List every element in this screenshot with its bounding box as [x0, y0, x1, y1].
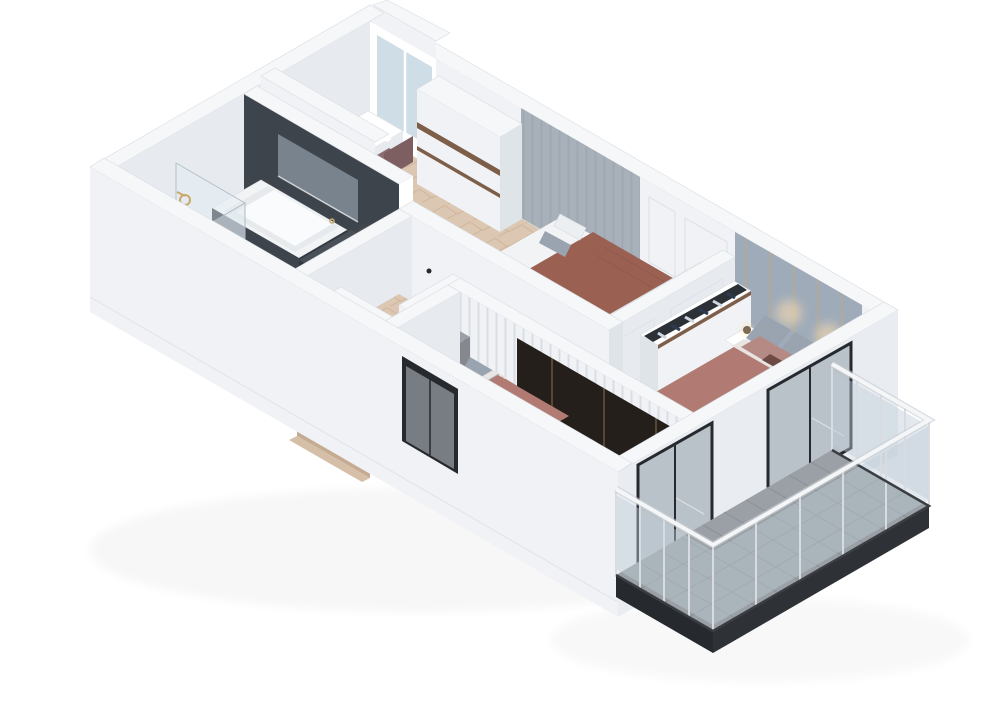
floorplan-render: [0, 0, 1000, 720]
isometric-floorplan: [0, 0, 1000, 720]
door-handle: [427, 269, 432, 274]
sconce-glow: [776, 300, 802, 326]
